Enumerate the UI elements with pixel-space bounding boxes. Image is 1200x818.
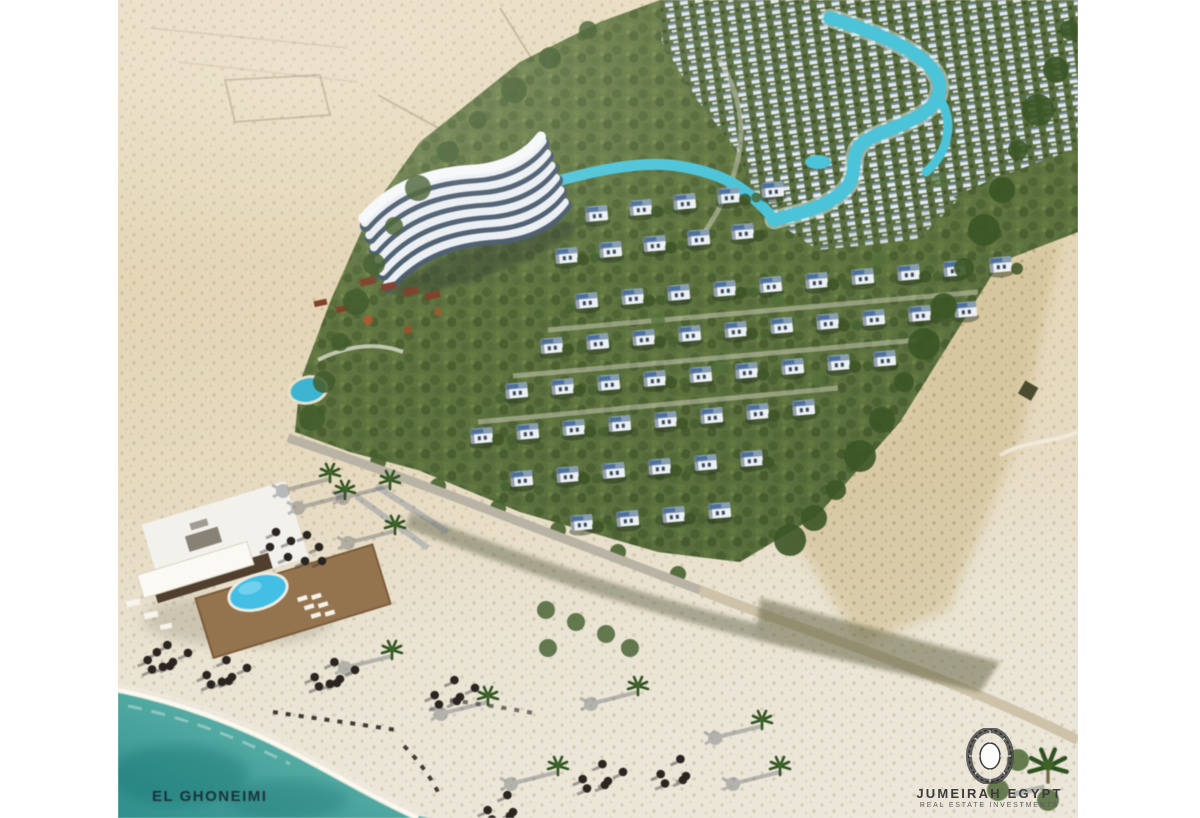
tree <box>579 21 597 39</box>
foreground-palm-tree <box>1013 745 1078 818</box>
diamond-gem-icon <box>965 728 1015 784</box>
tree <box>989 177 1015 203</box>
tree <box>537 601 555 619</box>
tree <box>871 253 885 267</box>
tree <box>539 47 561 69</box>
tree <box>908 328 940 360</box>
tree <box>437 141 459 163</box>
tree <box>869 407 895 433</box>
tree <box>597 625 615 643</box>
tree <box>826 480 846 500</box>
tree <box>385 217 403 235</box>
tree <box>1008 140 1028 160</box>
tree <box>844 440 876 472</box>
aerial-render-photo: EL GHONEIMI JUMEIRAH EGYPT REAL ESTATE I… <box>118 0 1078 818</box>
tree <box>299 405 325 431</box>
tree <box>313 371 335 393</box>
tree <box>469 111 487 129</box>
tree <box>711 361 725 375</box>
tree <box>567 613 585 631</box>
tree <box>774 524 806 556</box>
aerial-render-scene <box>118 0 1078 818</box>
tree <box>894 372 914 392</box>
tree <box>1022 94 1054 126</box>
tree <box>931 173 945 187</box>
tree <box>931 293 957 319</box>
tree <box>621 639 639 657</box>
architect-credit-text: EL GHONEIMI <box>152 788 267 805</box>
tree <box>811 373 825 387</box>
tree <box>801 505 827 531</box>
tree <box>501 77 527 103</box>
tree <box>771 293 785 307</box>
tree <box>954 258 974 278</box>
tree <box>1043 57 1069 83</box>
tree <box>331 333 349 351</box>
tree <box>539 639 557 657</box>
tree <box>968 214 1000 246</box>
tree <box>363 253 385 275</box>
tree <box>651 313 665 327</box>
tree <box>405 175 431 201</box>
screenshot-page: EL GHONEIMI JUMEIRAH EGYPT REAL ESTATE I… <box>0 0 1200 818</box>
tree <box>343 289 369 315</box>
